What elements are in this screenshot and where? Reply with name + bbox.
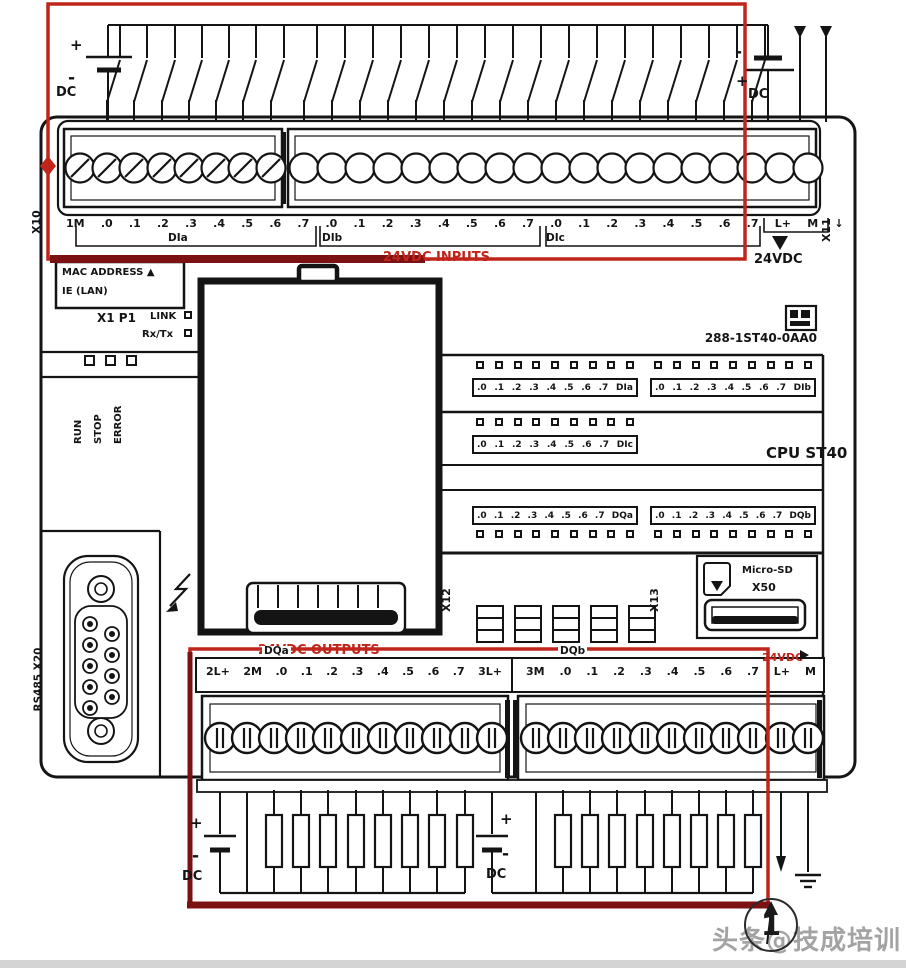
led-label: .1 — [494, 511, 504, 521]
plc-wiring-diagram: X10 X11 + - DC - + DC 1M.0.1.2.3.4.5.6.7… — [0, 0, 906, 968]
led-label: .5 — [739, 511, 749, 521]
terminal-label: .6 — [720, 666, 732, 677]
led-icon — [532, 530, 540, 538]
x10-label: X10 — [31, 210, 42, 234]
top-terminal-labels: 1M.0.1.2.3.4.5.6.7.0.1.2.3.4.5.6.7.0.1.2… — [66, 218, 844, 229]
led-label: .4 — [724, 383, 734, 393]
led-squares-dqb — [654, 530, 812, 538]
input-wiring — [107, 25, 768, 124]
terminal-label: .1 — [354, 218, 366, 229]
led-icon — [551, 418, 559, 426]
terminal-label: ↓ — [834, 218, 843, 229]
battery-dc-label: DC — [182, 870, 202, 883]
led-icon — [654, 361, 662, 369]
led-label: .3 — [705, 511, 715, 521]
terminal-label: M — [805, 666, 816, 677]
output-wiring — [204, 790, 821, 893]
terminal-label: .5 — [241, 218, 253, 229]
link-led-label: LINK — [150, 312, 176, 322]
led-label: .3 — [528, 511, 538, 521]
terminal-label: .4 — [667, 666, 679, 677]
cpu-model-label: CPU ST40 — [766, 446, 847, 461]
stop-led-label: STOP — [94, 414, 104, 444]
page-edge-strip — [0, 960, 906, 968]
led-icon — [589, 530, 597, 538]
led-label: .1 — [672, 511, 682, 521]
led-label: .0 — [477, 511, 487, 521]
product-code: 288-1ST40-0AA0 — [695, 332, 817, 344]
ground-icon — [795, 875, 821, 887]
rs485-label: RS485 X20 — [34, 648, 45, 712]
sensor-supply-caption: 24VDC — [762, 652, 803, 663]
terminal-label: 2M — [243, 666, 262, 677]
terminal-label: .0 — [560, 666, 572, 677]
led-icon — [570, 418, 578, 426]
terminal-label: 2L+ — [206, 666, 230, 677]
battery-plus-label: + — [736, 74, 749, 89]
led-label: .7 — [595, 511, 605, 521]
group-dqb-label: DQb — [558, 646, 587, 657]
terminal-label: .7 — [453, 666, 465, 677]
led-icon — [551, 361, 559, 369]
led-icon — [476, 530, 484, 538]
terminal-label: .6 — [269, 218, 281, 229]
battery-minus-label: - — [502, 846, 509, 863]
terminal-label: .7 — [747, 666, 759, 677]
terminal-label: M — [807, 218, 818, 229]
terminal-label: .4 — [662, 218, 674, 229]
group-dic-label: DIc — [546, 233, 565, 244]
led-label: .7 — [776, 383, 786, 393]
callout-arrow-icon — [744, 898, 794, 948]
led-icon — [729, 361, 737, 369]
led-label: .0 — [477, 383, 487, 393]
battery-minus-label: - — [735, 44, 742, 61]
led-icon — [767, 361, 775, 369]
terminal-label: .7 — [522, 218, 534, 229]
battery-top-left-icon — [86, 25, 132, 122]
led-icon — [532, 361, 540, 369]
led-label: .2 — [512, 383, 522, 393]
x12-label: X12 — [441, 588, 452, 612]
port-x1p1-label: X1 P1 — [97, 312, 136, 324]
terminal-label: .4 — [438, 218, 450, 229]
led-icon — [673, 530, 681, 538]
terminal-label: .1 — [301, 666, 313, 677]
terminal-label: .0 — [550, 218, 562, 229]
led-label: .6 — [582, 440, 592, 450]
led-label: .5 — [742, 383, 752, 393]
led-icon — [514, 361, 522, 369]
status-led-icon — [84, 355, 95, 366]
status-led-icon — [105, 355, 116, 366]
link-led-icon — [184, 311, 192, 319]
led-labels-dib: .0.1.2.3.4.5.6.7DIb — [650, 378, 816, 397]
led-label: .4 — [547, 440, 557, 450]
group-dia-label: DIa — [168, 233, 188, 244]
led-icon — [748, 361, 756, 369]
led-icon — [785, 361, 793, 369]
terminal-label: .3 — [410, 218, 422, 229]
terminal-label: .3 — [185, 218, 197, 229]
terminal-label: .4 — [377, 666, 389, 677]
led-icon — [476, 361, 484, 369]
group-dqa-label: DQa — [262, 646, 291, 657]
led-icon — [804, 361, 812, 369]
bottom-terminal-labels-left: 2L+2M.0.1.2.3.4.5.6.73L+ — [206, 666, 502, 677]
led-label: DQb — [789, 511, 811, 521]
led-icon — [785, 530, 793, 538]
led-label: .6 — [756, 511, 766, 521]
led-icon — [551, 530, 559, 538]
battery-dc-label: DC — [748, 88, 768, 101]
led-icon — [748, 530, 756, 538]
terminal-label: .1 — [129, 218, 141, 229]
battery-bottom-left-icon — [204, 792, 236, 893]
led-label: .3 — [707, 383, 717, 393]
led-label: .5 — [564, 440, 574, 450]
battery-plus-label: + — [190, 816, 203, 831]
led-icon — [589, 418, 597, 426]
terminal-label: .3 — [634, 218, 646, 229]
led-icon — [654, 530, 662, 538]
terminal-label: .0 — [325, 218, 337, 229]
led-label: .2 — [689, 511, 699, 521]
status-led-icon — [126, 355, 137, 366]
led-labels-dic: .0.1.2.3.4.5.6.7DIc — [472, 435, 638, 454]
led-icon — [532, 418, 540, 426]
inputs-caption: 24VDC INPUTS — [383, 251, 490, 264]
x13-label: X13 — [649, 588, 660, 612]
terminal-label: L+ — [775, 218, 791, 229]
led-icon — [607, 530, 615, 538]
terminal-label: .7 — [297, 218, 309, 229]
battery-dc-label: DC — [56, 86, 76, 99]
led-icon — [710, 530, 718, 538]
led-label: DIb — [794, 383, 811, 393]
terminal-label: .4 — [213, 218, 225, 229]
led-label: .7 — [599, 440, 609, 450]
terminal-label: .6 — [494, 218, 506, 229]
terminal-label: 1M — [66, 218, 85, 229]
terminal-label: .2 — [606, 218, 618, 229]
led-label: DIc — [617, 440, 633, 450]
led-icon — [729, 530, 737, 538]
terminal-label: .5 — [690, 218, 702, 229]
led-squares-dia — [476, 361, 634, 369]
led-label: .1 — [494, 440, 504, 450]
led-icon — [514, 530, 522, 538]
battery-dc-label: DC — [486, 868, 506, 881]
led-label: .6 — [581, 383, 591, 393]
watermark-text: 头条@技成培训 — [712, 920, 901, 957]
led-label: .3 — [529, 440, 539, 450]
led-label: DQa — [612, 511, 633, 521]
front-door — [201, 281, 439, 632]
rxtx-led-icon — [184, 329, 192, 337]
terminal-label: .2 — [382, 218, 394, 229]
rxtx-led-label: Rx/Tx — [142, 330, 173, 340]
led-icon — [626, 530, 634, 538]
led-label: .2 — [690, 383, 700, 393]
led-labels-dqa: .0.1.2.3.4.5.6.7DQa — [472, 506, 638, 525]
led-icon — [570, 361, 578, 369]
led-label: .1 — [672, 383, 682, 393]
mac-address-line1: MAC ADDRESS ▲ — [62, 268, 155, 278]
terminal-label: .7 — [747, 218, 759, 229]
led-icon — [626, 361, 634, 369]
led-label: .2 — [512, 440, 522, 450]
led-label: .1 — [494, 383, 504, 393]
led-label: .6 — [759, 383, 769, 393]
cert-logo — [786, 306, 816, 330]
led-icon — [692, 361, 700, 369]
terminal-label: .1 — [586, 666, 598, 677]
led-label: .4 — [544, 511, 554, 521]
terminal-label: .5 — [693, 666, 705, 677]
led-label: .3 — [529, 383, 539, 393]
diagram-line-art — [0, 0, 906, 968]
led-icon — [476, 418, 484, 426]
led-label: .0 — [477, 440, 487, 450]
comb-connector-icon — [247, 583, 405, 633]
sensor-arrow-icon — [800, 650, 809, 660]
terminal-label: .5 — [402, 666, 414, 677]
battery-plus-label: + — [500, 812, 513, 827]
terminal-label: .2 — [326, 666, 338, 677]
group-dib-label: DIb — [322, 233, 342, 244]
led-label: .5 — [564, 383, 574, 393]
battery-minus-label: - — [192, 848, 199, 865]
terminal-label: 3L+ — [478, 666, 502, 677]
led-label: .7 — [773, 511, 783, 521]
led-icon — [804, 530, 812, 538]
led-label: .2 — [511, 511, 521, 521]
terminal-label: .2 — [613, 666, 625, 677]
terminal-label: .5 — [466, 218, 478, 229]
terminal-label: L+ — [774, 666, 790, 677]
led-label: .4 — [547, 383, 557, 393]
led-icon — [767, 530, 775, 538]
terminal-label: .2 — [157, 218, 169, 229]
error-led-label: ERROR — [114, 406, 124, 444]
led-icon — [589, 361, 597, 369]
sd-label-line1: Micro-SD — [742, 566, 793, 576]
led-icon — [495, 361, 503, 369]
supply-caption: 24VDC — [754, 253, 802, 266]
supply-drop-arrows-icon — [794, 26, 832, 122]
led-icon — [673, 361, 681, 369]
led-icon — [607, 361, 615, 369]
callout-circle: 1 — [744, 898, 798, 952]
terminal-label: .6 — [427, 666, 439, 677]
led-icon — [607, 418, 615, 426]
wire-arrow-icon — [776, 856, 786, 872]
led-icon — [495, 530, 503, 538]
terminal-label: .3 — [351, 666, 363, 677]
terminal-label: .0 — [101, 218, 113, 229]
sd-label-line2: X50 — [752, 582, 776, 593]
led-labels-dqb: .0.1.2.3.4.5.6.7DQb — [650, 506, 816, 525]
led-icon — [570, 530, 578, 538]
terminal-label: .6 — [719, 218, 731, 229]
battery-plus-label: + — [70, 38, 83, 53]
mac-address-line2: IE (LAN) — [62, 287, 108, 297]
led-squares-dic — [476, 418, 634, 426]
terminal-label: .1 — [578, 218, 590, 229]
led-label: .4 — [722, 511, 732, 521]
door-tab — [299, 266, 337, 282]
led-icon — [626, 418, 634, 426]
din-clips-icon — [477, 606, 655, 642]
led-label: DIa — [616, 383, 633, 393]
led-label: .0 — [655, 383, 665, 393]
terminal-label: .0 — [275, 666, 287, 677]
led-icon — [495, 418, 503, 426]
led-labels-dia: .0.1.2.3.4.5.6.7DIa — [472, 378, 638, 397]
bottom-terminal-labels-right: 3M.0.1.2.3.4.5.6.7L+M — [526, 666, 816, 677]
status-led-icons — [84, 355, 137, 366]
led-icon — [692, 530, 700, 538]
led-squares-dib — [654, 361, 812, 369]
led-label: .0 — [655, 511, 665, 521]
run-led-label: RUN — [74, 420, 84, 444]
led-label: .7 — [599, 383, 609, 393]
led-icon — [710, 361, 718, 369]
terminal-label: 3M — [526, 666, 545, 677]
led-squares-dqa — [476, 530, 634, 538]
terminal-label: .3 — [640, 666, 652, 677]
led-label: .5 — [561, 511, 571, 521]
led-icon — [514, 418, 522, 426]
led-label: .6 — [578, 511, 588, 521]
